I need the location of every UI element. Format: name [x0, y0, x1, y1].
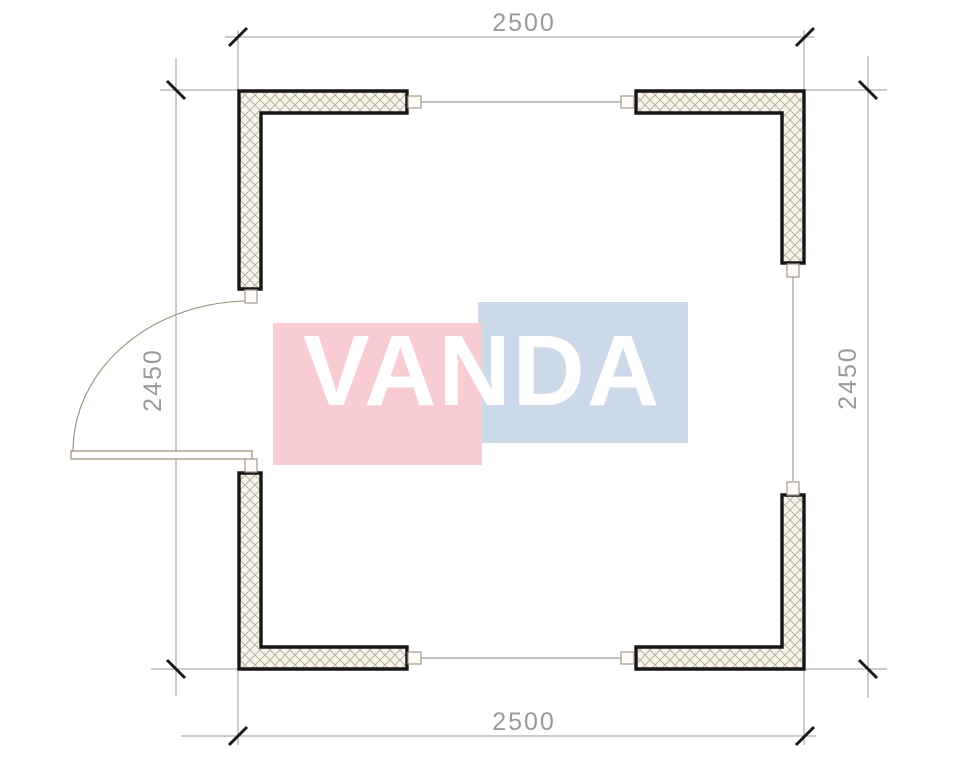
wall-connector [621, 96, 634, 108]
door-leaf [71, 451, 252, 459]
wall-bottom-left [239, 473, 407, 669]
watermark-text: VANDA [303, 315, 661, 427]
dimension-label-top: 2500 [492, 9, 556, 37]
wall-connector [245, 290, 257, 303]
wall-top-right [636, 91, 804, 263]
floor-plan-drawing: VANDA [0, 0, 960, 768]
dimension-label-right: 2450 [834, 346, 862, 410]
wall-connector [787, 482, 799, 495]
dimension-label-bottom: 2500 [492, 708, 556, 736]
wall-connector [408, 652, 421, 664]
wall-connector [245, 459, 257, 472]
wall-connector [621, 652, 634, 664]
watermark: VANDA [273, 302, 688, 465]
floor-plan-canvas: VANDA [0, 0, 960, 768]
wall-connector [787, 264, 799, 277]
wall-connector [408, 96, 421, 108]
dimension-label-left: 2450 [139, 348, 167, 412]
wall-top-left [239, 91, 407, 289]
wall-bottom-right [636, 495, 804, 669]
